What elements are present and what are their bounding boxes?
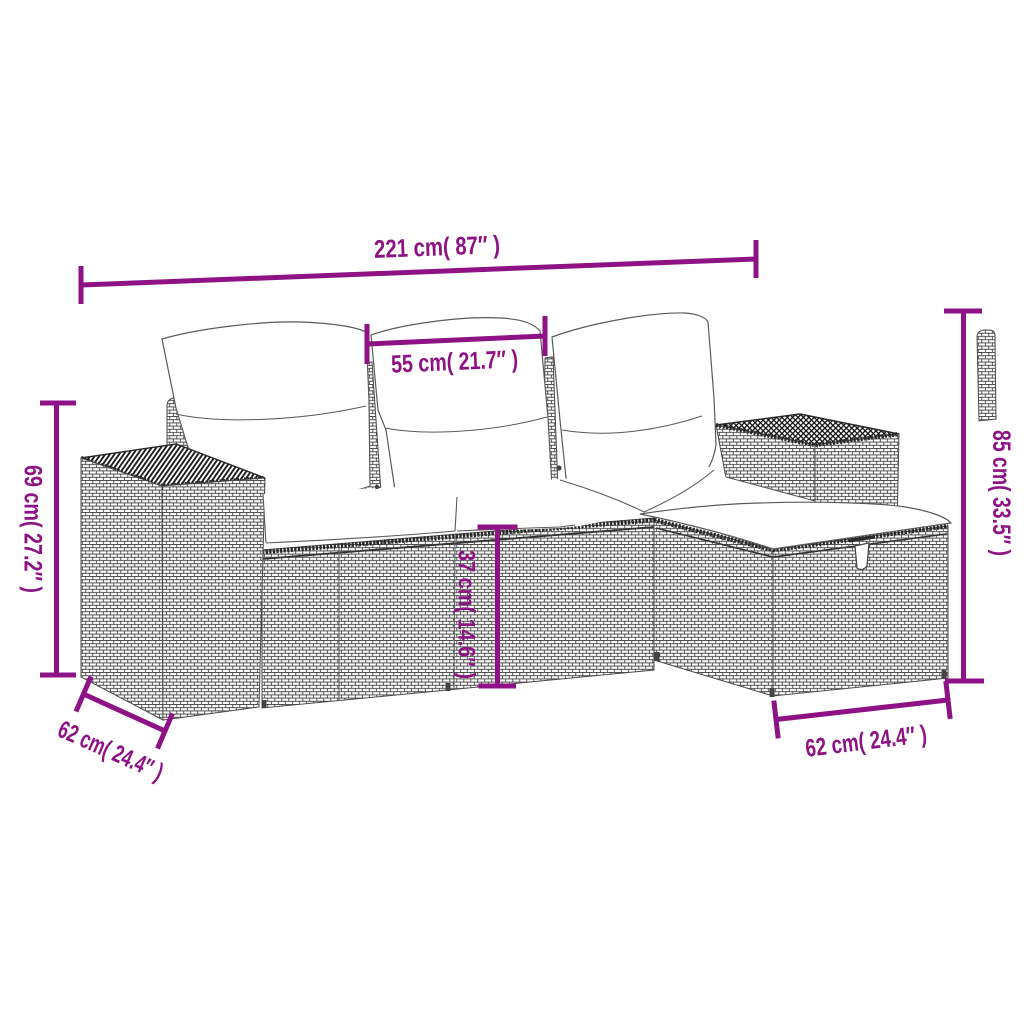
svg-text:37 cm( 14.6″ ): 37 cm( 14.6″ ) (453, 550, 480, 679)
svg-text:221 cm( 87″ ): 221 cm( 87″ ) (374, 231, 501, 264)
svg-text:55 cm( 21.7″ ): 55 cm( 21.7″ ) (391, 345, 519, 379)
svg-text:69 cm( 27.2″ ): 69 cm( 27.2″ ) (19, 465, 47, 593)
svg-text:85 cm( 33.5″ ): 85 cm( 33.5″ ) (987, 430, 1015, 556)
